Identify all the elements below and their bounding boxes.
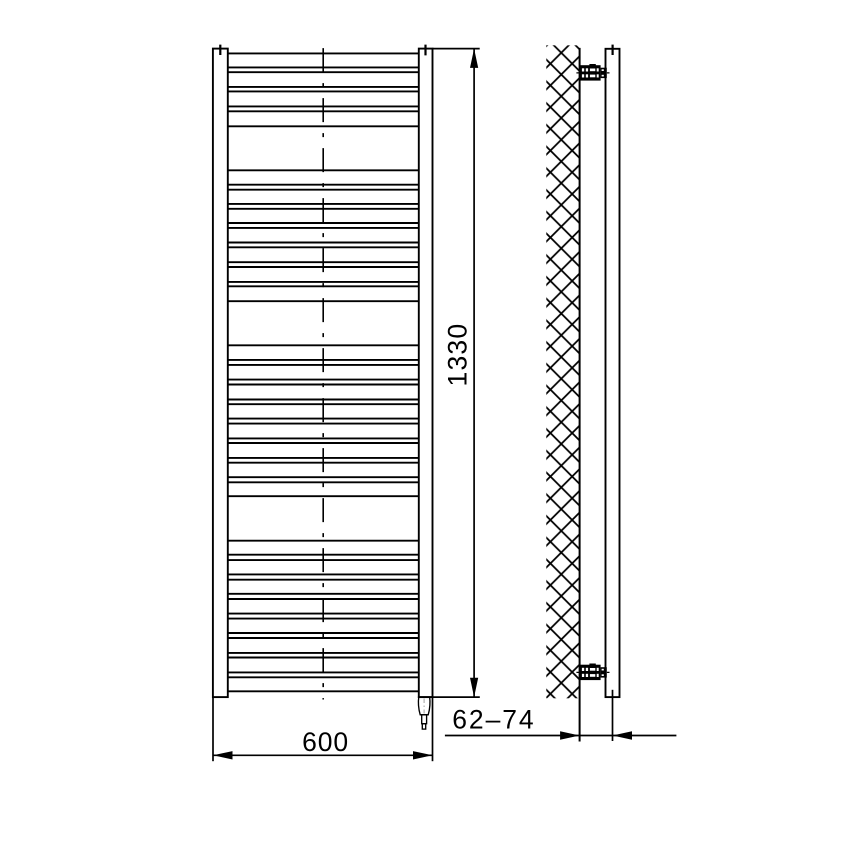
svg-text:62–74: 62–74 [452,704,535,734]
svg-text:600: 600 [302,727,349,757]
svg-text:1330: 1330 [442,323,472,387]
